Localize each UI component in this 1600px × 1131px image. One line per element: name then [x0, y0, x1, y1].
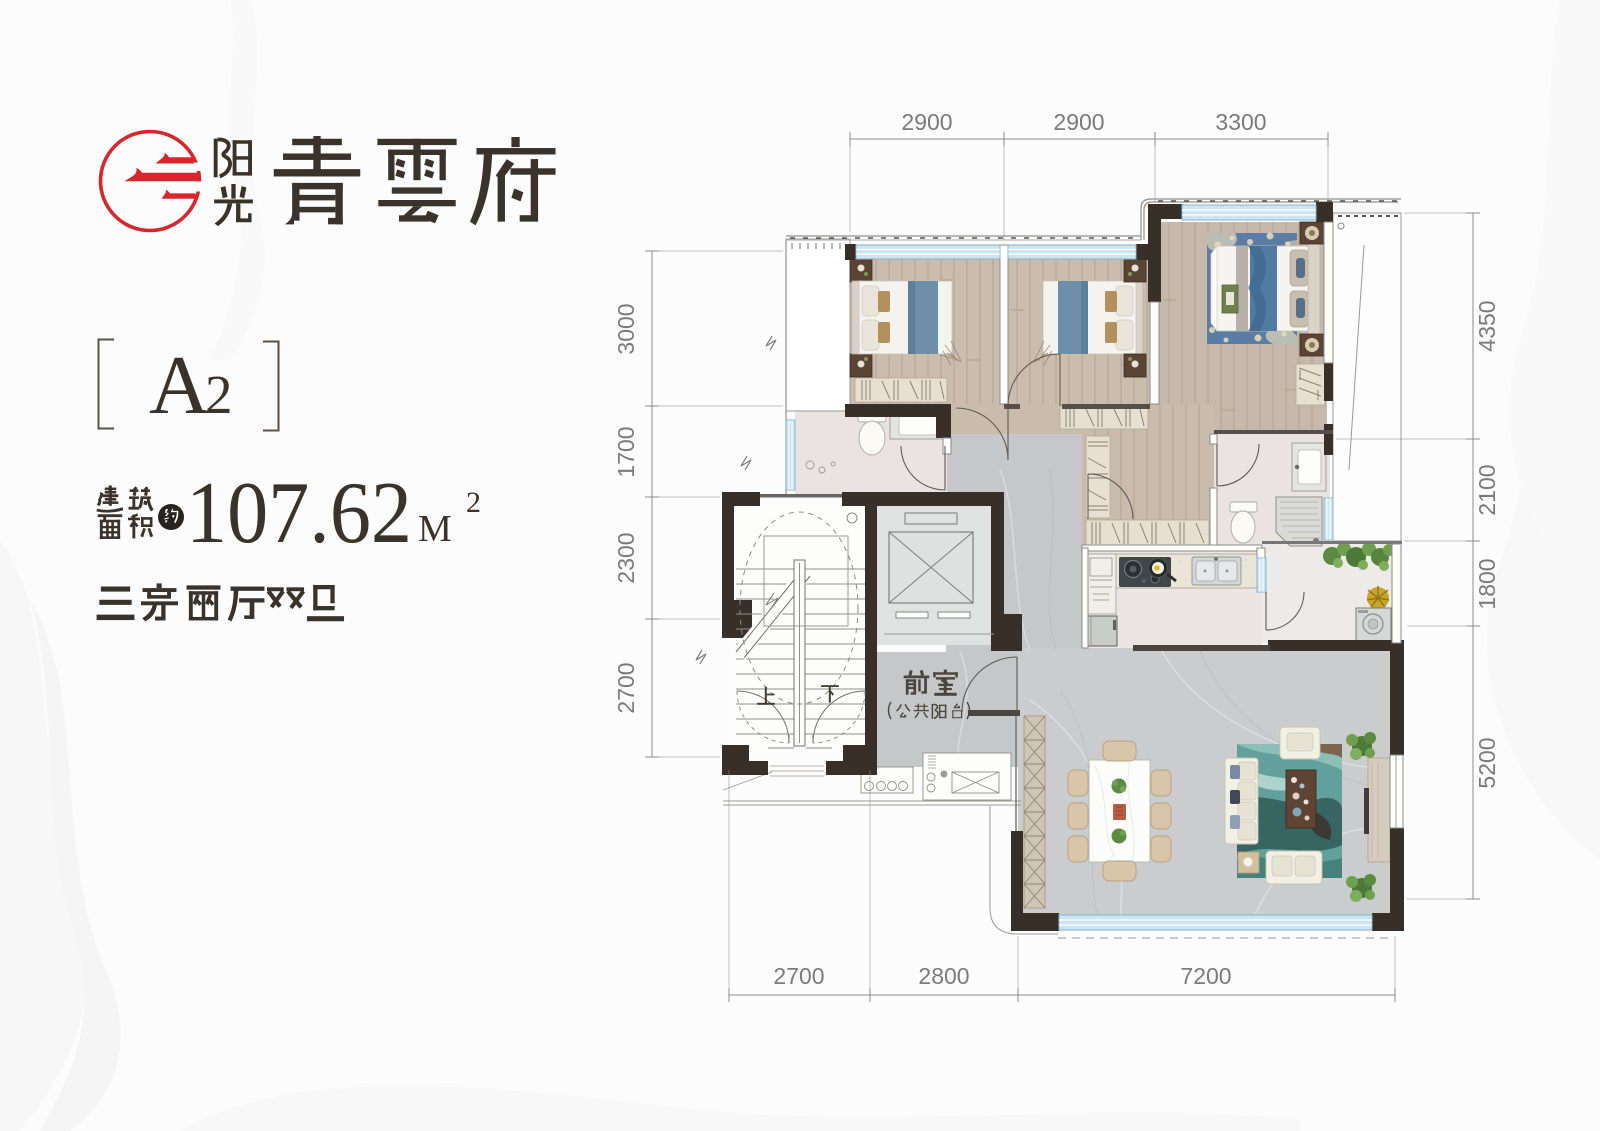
svg-text:2100: 2100 [1474, 464, 1500, 515]
svg-text:5200: 5200 [1474, 737, 1500, 788]
svg-text:2700: 2700 [613, 662, 639, 713]
svg-text:2300: 2300 [613, 532, 639, 583]
svg-text:3300: 3300 [1215, 109, 1266, 135]
svg-text:107.62: 107.62 [186, 465, 412, 562]
svg-text:2800: 2800 [918, 963, 969, 989]
svg-text:7200: 7200 [1180, 963, 1231, 989]
svg-text:2700: 2700 [773, 963, 824, 989]
svg-text:2900: 2900 [901, 109, 952, 135]
svg-text:A: A [149, 339, 210, 432]
svg-text:2900: 2900 [1053, 109, 1104, 135]
svg-text:3000: 3000 [613, 303, 639, 354]
svg-text:1800: 1800 [1474, 558, 1500, 609]
svg-text:M: M [418, 508, 452, 550]
svg-text:2: 2 [205, 364, 233, 425]
svg-text:4350: 4350 [1474, 300, 1500, 351]
svg-text:1700: 1700 [613, 426, 639, 477]
svg-text:2: 2 [466, 486, 481, 519]
